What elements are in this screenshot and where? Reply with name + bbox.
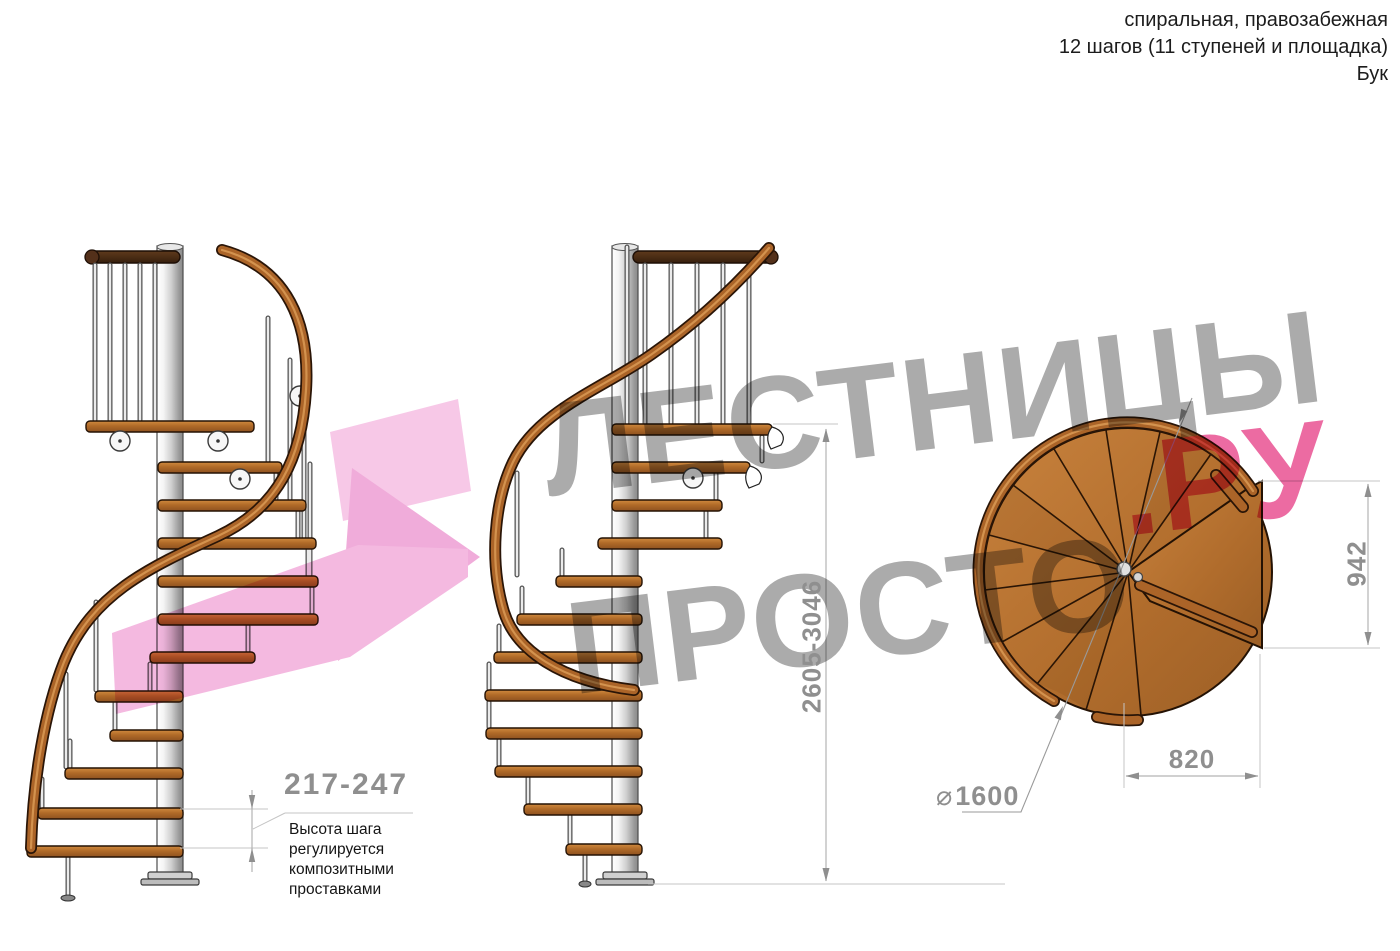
diameter-symbol: ⌀ (936, 781, 953, 812)
drawing-header: спиральная, правозабежная 12 шагов (11 с… (1059, 7, 1388, 88)
plan-width-dimension: 820 (1152, 744, 1232, 775)
step-height-note: Высота шага регулируется композитными пр… (289, 820, 439, 900)
header-steps: 12 шагов (11 ступеней и площадка) (1059, 34, 1388, 61)
step-height-dimension: 217-247 (284, 768, 408, 802)
diameter-dimension: ⌀1600 (936, 781, 1019, 812)
total-height-dimension: 2605-3046 (797, 562, 828, 732)
platform-board (86, 421, 254, 432)
watermark-domain: .РУ (1111, 392, 1338, 564)
header-type: спиральная, правозабежная (1059, 7, 1388, 34)
plan-depth-dimension: 942 (1342, 519, 1373, 609)
platform-handrail (88, 251, 180, 263)
drawing-canvas: спиральная, правозабежная 12 шагов (11 с… (0, 0, 1400, 951)
left-elevation-view (27, 244, 318, 902)
header-material: Бук (1059, 61, 1388, 88)
